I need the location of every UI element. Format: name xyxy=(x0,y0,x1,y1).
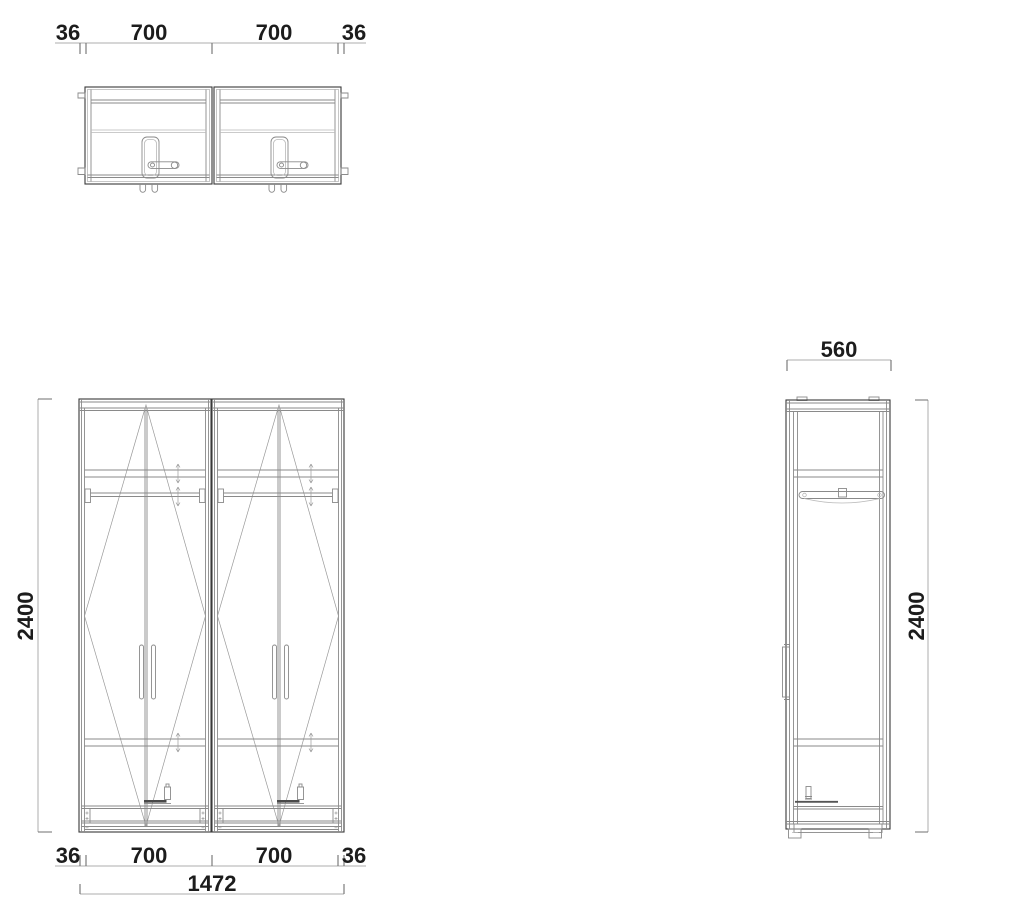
front-dim-left-panel: 36 xyxy=(56,845,80,867)
plan-dim-left-bay: 700 xyxy=(131,22,168,44)
front-dim-height: 2400 xyxy=(15,592,37,641)
front-dim-right-panel: 36 xyxy=(342,845,366,867)
front-dim-right-bay: 700 xyxy=(256,845,293,867)
front-dim-left-bay: 700 xyxy=(131,845,168,867)
drawing-canvas xyxy=(0,0,1024,923)
plan-dimension-line xyxy=(55,43,366,54)
plan-dim-right-panel: 36 xyxy=(342,22,366,44)
front-height-dimension-line xyxy=(38,399,52,832)
front-dim-total-width: 1472 xyxy=(188,873,237,895)
side-dim-height: 2400 xyxy=(906,592,928,641)
front-elevation-drawing xyxy=(38,399,366,894)
plan-dim-left-panel: 36 xyxy=(56,22,80,44)
plan-view-drawing xyxy=(55,43,366,192)
side-dim-depth: 560 xyxy=(821,339,858,361)
technical-drawing-sheet: 36 700 700 36 2400 36 700 700 36 1472 56… xyxy=(0,0,1024,923)
plan-dim-right-bay: 700 xyxy=(256,22,293,44)
